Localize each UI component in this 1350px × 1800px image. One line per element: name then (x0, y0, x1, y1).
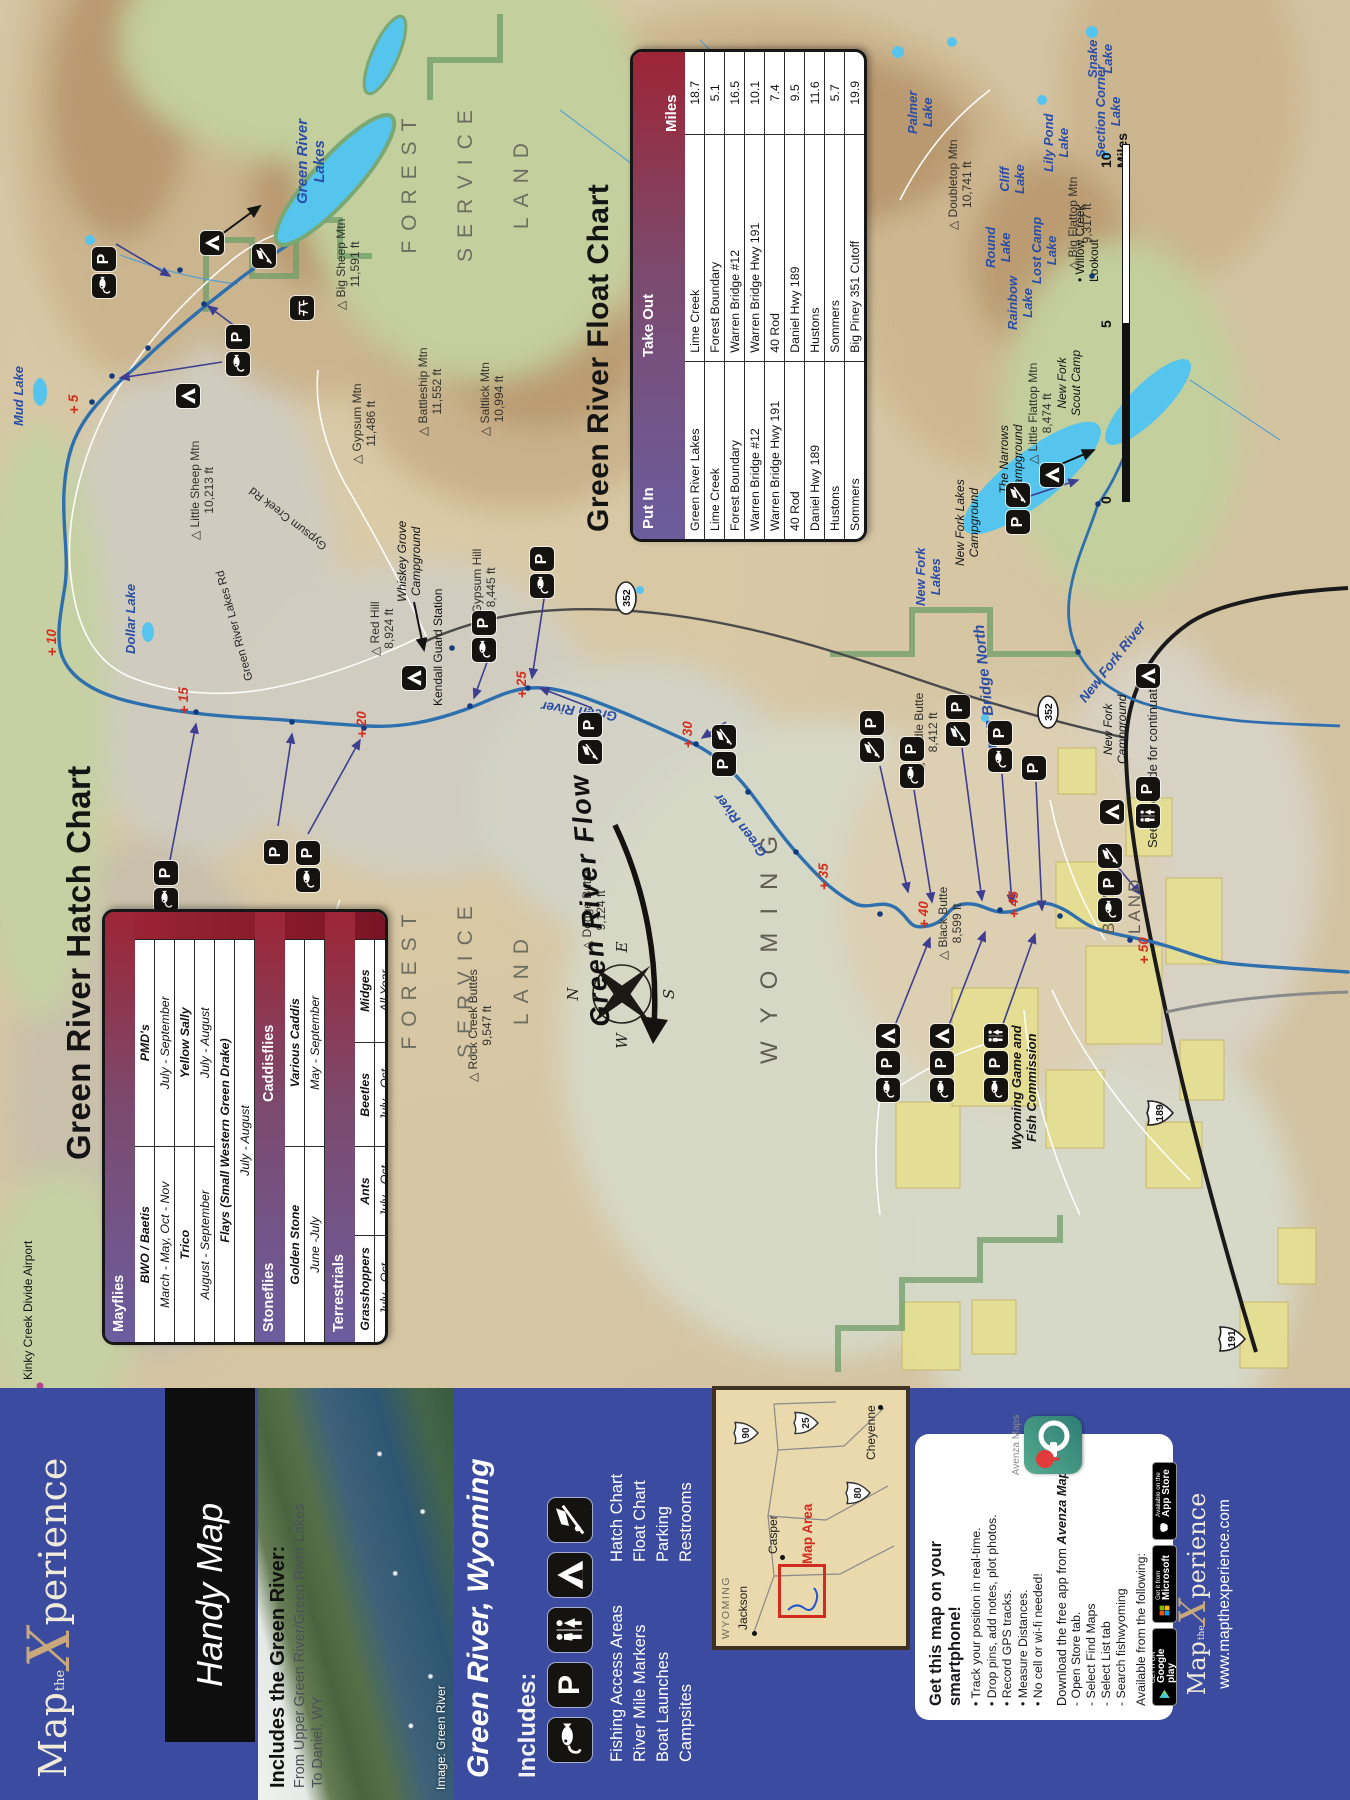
inset-town-casper-dot (780, 1555, 785, 1560)
hatch-cell: All Year (375, 939, 388, 1042)
float-cell: 40 Rod (785, 361, 804, 539)
map-icon-group: P (984, 1024, 1008, 1102)
map-icon-group: P (988, 721, 1012, 772)
hatch-section-band: Mayflies (105, 912, 135, 1342)
map-label: △ Gypsum Mtn 11,486 ft (350, 383, 379, 464)
float-chart-header: Put In Take Out Miles (633, 52, 685, 539)
hatch-cell: May - September (305, 939, 324, 1146)
hatch-section-band: Terrestrials (325, 912, 355, 1342)
hatch-chart: MayfliesBWO / BaetisPMD'sMarch - May, Oc… (102, 909, 388, 1345)
route-shield-352: 352 (614, 580, 643, 616)
park-icon: P (712, 752, 736, 776)
inset-map-area-box (778, 1564, 826, 1618)
boat-icon (712, 725, 736, 749)
inset-town-jackson: Jackson (736, 1586, 750, 1630)
route-shield-191: 191 (1216, 1324, 1253, 1354)
float-cell: Warren Bridge Hwy 191 (745, 134, 764, 361)
float-cell: Lime Creek (685, 134, 704, 361)
handy-map-band: Handy Map (165, 1388, 255, 1742)
legend-item: Hatch Chart (606, 1474, 629, 1562)
hatch-cell: Trico (175, 1146, 194, 1342)
map-icon-group (1136, 664, 1160, 688)
mile-marker-35: +35 (817, 863, 832, 890)
float-cell: Warren Bridge Hwy 191 (765, 361, 784, 539)
map-icon-group: P (930, 1024, 954, 1102)
fish-icon (296, 868, 320, 892)
restroom-icon (548, 1608, 592, 1652)
float-cell: 16.5 (725, 52, 744, 134)
hatch-cell: August - September (195, 1146, 214, 1342)
fish-icon (876, 1078, 900, 1102)
brand-logo: Map the X perience (26, 1458, 72, 1778)
footer-brand: Map the X perience www.mapthexperience.c… (1180, 1388, 1234, 1800)
route-shield-189: 189 (1144, 1098, 1181, 1128)
float-cell: 9.5 (785, 52, 804, 134)
map-label: FOREST SERVICE LAND (382, 896, 550, 1058)
hatch-chart-title: Green River Hatch Chart (60, 765, 98, 1160)
park-icon: P (296, 841, 320, 865)
map-label: △ Red Hill 8,924 ft (368, 601, 397, 656)
park-icon: P (1136, 777, 1160, 801)
inset-shield-80: 80 (844, 1480, 874, 1506)
compass-n: N (564, 987, 582, 1002)
smartphone-box: Get this map on your smartphone! • Track… (915, 1434, 1173, 1720)
smartphone-step: - Select List tab (1099, 1446, 1114, 1706)
float-cell: Sommers (845, 361, 864, 539)
float-cell: Warren Bridge #12 (745, 361, 764, 539)
avenza-logo (1024, 1416, 1082, 1474)
park-icon: P (92, 247, 116, 271)
map-icon-group: P (876, 1024, 900, 1102)
brand-logo-map: Map (34, 1692, 72, 1778)
float-row: HustonsSommers5.7 (825, 52, 845, 539)
map-label: △ Black Butte 8,599 ft (936, 887, 965, 960)
hatch-row: July - OctJuly - OctJuly - OctAll Year (375, 939, 388, 1342)
map-label: △ Little Sheep Mtn 10,213 ft (188, 441, 217, 540)
scale-five: 5 (1098, 320, 1114, 328)
float-cell: 5.7 (825, 52, 844, 134)
hatch-row: August - SeptemberJuly - August (195, 939, 215, 1342)
inset-shield-25: 25 (792, 1410, 822, 1436)
avenza-caption: Avenza Maps (1011, 1408, 1022, 1482)
float-cell: Big Piney 351 Cutoff (845, 134, 864, 361)
park-icon: P (984, 1051, 1008, 1075)
inset-state-label: WYOMING (720, 1576, 732, 1639)
fish-icon (92, 274, 116, 298)
float-cell: 11.6 (805, 52, 824, 134)
park-icon: P (530, 547, 554, 571)
map-icon-group: P (1022, 756, 1046, 780)
map-label: △ Big Sheep Mtn 11,591 ft (334, 219, 363, 310)
float-col-miles: Miles (663, 94, 680, 132)
hatch-cell: Grasshoppers (355, 1235, 374, 1342)
google-play-badge: GET IT ONGoogle play (1152, 1628, 1177, 1706)
compass-w: W (613, 1032, 631, 1049)
hatch-section-band: StonefliesCaddisflies (255, 912, 285, 1342)
legend-item: Float Chart (629, 1474, 652, 1562)
mile-marker-5: +5 (67, 395, 82, 414)
park-icon: P (1098, 871, 1122, 895)
park-icon: P (930, 1051, 954, 1075)
restroom-icon (1136, 804, 1160, 828)
map-icon-group: P (1098, 844, 1122, 922)
float-cell: 40 Rod (765, 134, 784, 361)
camp-icon (402, 666, 426, 690)
handy-map-label: Handy Map (189, 1503, 231, 1742)
float-row: 40 RodDaniel Hwy 1899.5 (785, 52, 805, 539)
fish-icon (930, 1078, 954, 1102)
float-cell: Warren Bridge #12 (725, 134, 744, 361)
hatch-cell: BWO / Baetis (135, 1146, 154, 1342)
map-icon-group: P (860, 711, 884, 762)
float-cell: Hustons (805, 134, 824, 361)
float-row: SommersBig Piney 351 Cutoff19.9 (845, 52, 864, 539)
svg-text:191: 191 (1226, 1330, 1238, 1348)
brand-logo-perience: perience (34, 1458, 72, 1626)
park-icon: P (226, 325, 250, 349)
app-store-badge: Available on theApp Store (1152, 1462, 1177, 1540)
park-icon: P (946, 695, 970, 719)
park-icon: P (900, 737, 924, 761)
mile-marker-20: +20 (355, 711, 370, 738)
compass-s: S (660, 989, 676, 999)
map-icon-group: P (154, 861, 178, 912)
map-icon-group: P (712, 725, 736, 776)
hatch-cell: July - Oct (375, 1042, 388, 1146)
float-row: Forest BoundaryWarren Bridge #1216.5 (725, 52, 745, 539)
map-icon-group: P (264, 840, 288, 864)
inset-town-casper: Casper (766, 1515, 780, 1554)
smartphone-step: - Select Find Maps (1084, 1446, 1099, 1706)
camp-icon (548, 1553, 592, 1597)
cover-includes-sub2: To Daniel, WY (309, 1504, 327, 1788)
svg-text:352: 352 (621, 589, 633, 607)
hatch-row: March - May, Oct - NovJuly - September (155, 939, 175, 1342)
camp-icon (930, 1024, 954, 1048)
legend-item: River Mile Markers (629, 1605, 652, 1762)
footer-logo: Map the X perience (1180, 1493, 1209, 1696)
hatch-row: July - August (235, 939, 255, 1342)
fish-icon (988, 748, 1012, 772)
hatch-cell: Beetles (355, 1042, 374, 1146)
map-icon-group (402, 666, 426, 690)
map-label: △ Battleship Mtn 11,552 ft (416, 347, 445, 436)
hatch-cell: Midges (355, 939, 374, 1042)
mile-marker-25: +25 (515, 671, 530, 698)
hatch-cell: Yellow Sally (175, 939, 194, 1146)
fish-icon (548, 1718, 592, 1762)
camp-icon (200, 231, 224, 255)
park-icon: P (578, 713, 602, 737)
float-cell: Daniel Hwy 189 (805, 361, 824, 539)
hatch-row: TricoYellow Sally (175, 939, 195, 1342)
svg-text:25: 25 (801, 1417, 812, 1429)
float-cell: Forest Boundary (725, 361, 744, 539)
float-cell: Sommers (825, 134, 844, 361)
map-icon-group (252, 244, 276, 268)
hatch-row: June -JulyMay - September (305, 939, 325, 1342)
camp-icon (176, 384, 200, 408)
landscape-stage: N E S W 0 5 10 Miles Green River Hatch C… (0, 0, 1350, 1800)
hatch-cell: PMD's (135, 939, 154, 1146)
compass-e: E (613, 941, 631, 953)
smartphone-step: - Search fishwyoming (1114, 1446, 1129, 1706)
boat-icon (548, 1498, 592, 1542)
map-label: Kendall Guard Station (432, 589, 446, 706)
brand-logo-x: X (26, 1627, 72, 1668)
mile-marker-50: +50 (1137, 937, 1152, 964)
fish-icon (900, 764, 924, 788)
map-label: New Fork Scout Camp (1056, 350, 1084, 416)
picnic-icon (290, 296, 314, 320)
float-cell: 7.4 (765, 52, 784, 134)
map-icon-group (1040, 463, 1064, 487)
smartphone-bullet: • Record GPS tracks. (1000, 1446, 1016, 1706)
map-label: △ Little Flattop Mtn 8,474 ft (1026, 363, 1055, 464)
map-label: Lily Pond Lake (1042, 114, 1072, 173)
map-label: • Willow Creek Lookout (1074, 204, 1102, 282)
float-cell: 10.1 (745, 52, 764, 134)
float-cell: Hustons (825, 361, 844, 539)
float-row: Green River LakesLime Creek18.7 (685, 52, 705, 539)
mile-marker-10: +10 (45, 629, 60, 656)
map-icon-group: P (472, 611, 496, 662)
smartphone-bullet: • No cell or wi-fi needed! (1031, 1446, 1047, 1706)
hatch-row: GrasshoppersAntsBeetlesMidges (355, 939, 375, 1342)
map-icon-group: P (226, 325, 250, 376)
float-row: Lime CreekForest Boundary5.1 (705, 52, 725, 539)
cover-includes-heading: Includes the Green River: (266, 1504, 291, 1788)
photo-credit: Image: Green River (434, 1685, 448, 1790)
legend-list-left: Fishing Access AreasRiver Mile MarkersBo… (606, 1605, 698, 1762)
region-title: Green River, Wyoming (462, 1458, 496, 1778)
map-icon-group: P (296, 841, 320, 892)
hatch-row: Golden StoneVarious Caddis (285, 939, 305, 1342)
fish-icon (530, 574, 554, 598)
map-label: Dollar Lake (124, 584, 139, 654)
smartphone-bullet: • Track your position in real-time. (969, 1446, 985, 1706)
map-label: New Fork Campground (1102, 695, 1130, 764)
smartphone-bullet: • Drop pins, add notes, plot photos. (985, 1446, 1001, 1706)
map-label: Rainbow Lake (1006, 276, 1036, 330)
boat-icon (1006, 483, 1030, 507)
map-label: FOREST SERVICE LAND (382, 100, 550, 262)
scale-segment-hollow (1122, 144, 1130, 324)
inset-town-cheyenne: Cheyenne (864, 1405, 878, 1460)
smartphone-step: - Open Store tab. (1069, 1446, 1084, 1706)
map-icon-group: P (1006, 483, 1030, 534)
restroom-icon (984, 1024, 1008, 1048)
fish-icon (1098, 898, 1122, 922)
scale-zero: 0 (1098, 496, 1114, 504)
cover-panel: Map the X perience Handy Map Includes th… (0, 1388, 1350, 1800)
float-cell: Forest Boundary (705, 134, 724, 361)
svg-text:189: 189 (1154, 1104, 1166, 1122)
boat-icon (252, 244, 276, 268)
svg-text:352: 352 (1043, 703, 1055, 721)
park-icon: P (264, 840, 288, 864)
inset-map-area-label: Map Area (800, 1504, 815, 1564)
map-label: Green River Lakes (294, 119, 329, 204)
smartphone-bullet: • Measure Distances. (1016, 1446, 1032, 1706)
park-icon: P (860, 711, 884, 735)
mile-marker-45: +45 (1007, 891, 1022, 918)
smartphone-title: Get this map on your smartphone! (927, 1446, 965, 1706)
legend-item: Boat Launches (652, 1605, 675, 1762)
scale-segment-solid (1122, 322, 1130, 502)
boat-icon (1098, 844, 1122, 868)
legend-icons: P (548, 1498, 592, 1762)
hatch-cell: Various Caddis (285, 939, 304, 1146)
wyoming-inset-map: WYOMING Jackson Casper Cheyenne Map Area… (712, 1386, 910, 1650)
map-icon-group (176, 384, 200, 408)
avenza-logo-block: Avenza Maps (1011, 1408, 1082, 1482)
hatch-cell: July - September (155, 939, 174, 1146)
download-line: Download the free app from Avenza Maps (1054, 1446, 1069, 1706)
mile-marker-30: +30 (681, 721, 696, 748)
fish-icon (472, 638, 496, 662)
camp-icon (1040, 463, 1064, 487)
hatch-cell: June -July (305, 1146, 324, 1342)
map-icon-group (1100, 800, 1124, 824)
float-cell: 18.7 (685, 52, 704, 134)
float-col-put-in: Put In (640, 487, 657, 529)
inset-town-jackson-dot (752, 1631, 757, 1636)
hatch-cell: March - May, Oct - Nov (155, 1146, 174, 1342)
hatch-cell: July - August (235, 939, 254, 1342)
hatch-cell: July - August (195, 939, 214, 1146)
hatch-row: Flays (Small Western Green Drake) (215, 939, 235, 1342)
map-label: △ Doubletop Mtn 10,741 ft (946, 139, 975, 230)
legend-heading: Includes: (514, 1673, 542, 1778)
map-label: Round Lake (984, 227, 1014, 268)
cover-includes-text: Includes the Green River: From Upper Gre… (266, 1504, 327, 1788)
park-icon: P (876, 1051, 900, 1075)
legend-item: Fishing Access Areas (606, 1605, 629, 1762)
float-row: Daniel Hwy 189Hustons11.6 (805, 52, 825, 539)
inset-shield-90: 90 (732, 1420, 762, 1446)
park-icon: P (154, 861, 178, 885)
map-label: Kinky Creek Divide Airport (22, 1241, 36, 1380)
park-icon: P (1022, 756, 1046, 780)
mile-marker-15: +15 (177, 687, 192, 714)
camp-icon (1136, 664, 1160, 688)
float-col-take-out: Take Out (640, 294, 657, 357)
boat-icon (578, 740, 602, 764)
route-shield-352: 352 (1036, 694, 1065, 730)
map-label: Wyoming Game and Fish Commission (1010, 1025, 1040, 1150)
cover-includes-sub1: From Upper Green River/Green River Lakes (291, 1504, 309, 1788)
inset-town-cheyenne-dot (878, 1405, 883, 1410)
float-row: Warren Bridge Hwy 19140 Rod7.4 (765, 52, 785, 539)
boat-icon (860, 738, 884, 762)
map-icon-group: P (946, 695, 970, 746)
hatch-row: BWO / BaetisPMD's (135, 939, 155, 1342)
map-icon-group (290, 296, 314, 320)
map-icon-group (200, 231, 224, 255)
float-cell: Green River Lakes (685, 361, 704, 539)
hatch-cell: Ants (355, 1146, 374, 1234)
float-chart: Put In Take Out Miles Green River LakesL… (630, 49, 867, 542)
available-from-label: Available from the following: (1134, 1446, 1148, 1706)
map-label: Palmer Lake (906, 91, 936, 134)
map-label: Mud Lake (12, 366, 27, 426)
cover-photo: Includes the Green River: From Upper Gre… (258, 1388, 454, 1800)
boat-icon (946, 722, 970, 746)
park-icon: P (548, 1663, 592, 1707)
map-label: △ Saltlick Mtn 10,994 ft (478, 362, 507, 436)
float-cell: 19.9 (845, 52, 864, 134)
legend-item: Campsites (675, 1605, 698, 1762)
hatch-cell: Flays (Small Western Green Drake) (215, 939, 234, 1342)
hatch-cell: July - Oct (375, 1146, 388, 1234)
map-icon-group: P (578, 713, 602, 764)
map-icon-group: P (900, 737, 924, 788)
fish-icon (984, 1078, 1008, 1102)
svg-text:90: 90 (741, 1427, 752, 1439)
float-cell: Lime Creek (705, 361, 724, 539)
legend-item: Parking (652, 1474, 675, 1562)
park-icon: P (1006, 510, 1030, 534)
legend-item: Restrooms (675, 1474, 698, 1562)
park-icon: P (472, 611, 496, 635)
hatch-cell: Golden Stone (285, 1146, 304, 1342)
map-sheet: N E S W 0 5 10 Miles Green River Hatch C… (0, 0, 1350, 1800)
fish-icon (226, 352, 250, 376)
float-row: Warren Bridge #12Warren Bridge Hwy 19110… (745, 52, 765, 539)
website-url: www.mapthexperience.com (1216, 1388, 1234, 1800)
park-icon: P (988, 721, 1012, 745)
map-label: Cliff Lake (998, 164, 1028, 194)
map-icon-group: P (92, 247, 116, 298)
svg-text:80: 80 (853, 1487, 864, 1499)
map-label: Snake Lake (1086, 40, 1116, 78)
map-label: Whiskey Grove Campground (396, 521, 424, 602)
legend-list-right: Hatch ChartFloat ChartParkingRestrooms (606, 1474, 698, 1562)
map-icon-group: P (530, 547, 554, 598)
map-label: New Fork Lakes (914, 547, 944, 606)
float-cell: Daniel Hwy 189 (785, 134, 804, 361)
float-chart-title: Green River Float Chart (582, 184, 616, 532)
map-icon-group: P (1136, 777, 1160, 828)
camp-icon (1100, 800, 1124, 824)
mile-marker-40: +40 (917, 901, 932, 928)
map-label: New Fork Lakes Campground (954, 479, 982, 566)
brand-logo-the: the (53, 1670, 68, 1691)
hatch-cell: July - Oct (375, 1235, 388, 1342)
float-cell: 5.1 (705, 52, 724, 134)
camp-icon (876, 1024, 900, 1048)
map-label: Lost Camp Lake (1030, 217, 1060, 284)
